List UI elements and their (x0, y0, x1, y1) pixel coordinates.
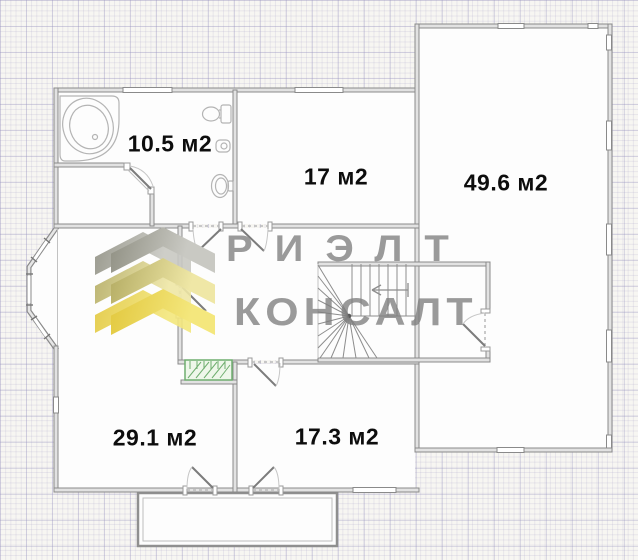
floor-plan-drawing (0, 0, 638, 560)
room-label-bathroom: 10.5 м2 (128, 131, 212, 158)
room-label-17: 17 м2 (304, 164, 368, 191)
porch (138, 493, 337, 546)
room-label-17-3: 17.3 м2 (295, 424, 379, 451)
room-label-29-1: 29.1 м2 (113, 425, 197, 452)
floor-plan-page: 10.5 м2 17 м2 49.6 м2 29.1 м2 17.3 м2 РИ… (0, 0, 638, 560)
wardrobe-icon (185, 360, 232, 380)
room-label-49-6: 49.6 м2 (464, 170, 548, 197)
